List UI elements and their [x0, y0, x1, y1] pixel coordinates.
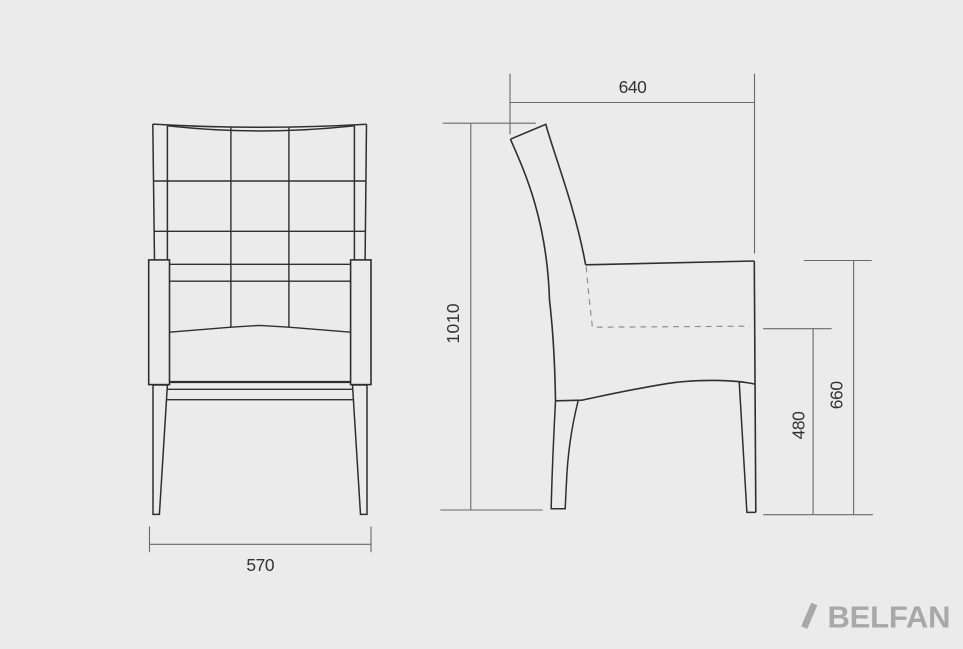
svg-text:480: 480	[789, 412, 809, 440]
svg-text:1010: 1010	[443, 303, 463, 344]
svg-text:BELFAN: BELFAN	[828, 599, 951, 634]
svg-text:640: 640	[619, 77, 647, 97]
svg-text:660: 660	[827, 381, 847, 409]
svg-text:570: 570	[246, 555, 274, 575]
